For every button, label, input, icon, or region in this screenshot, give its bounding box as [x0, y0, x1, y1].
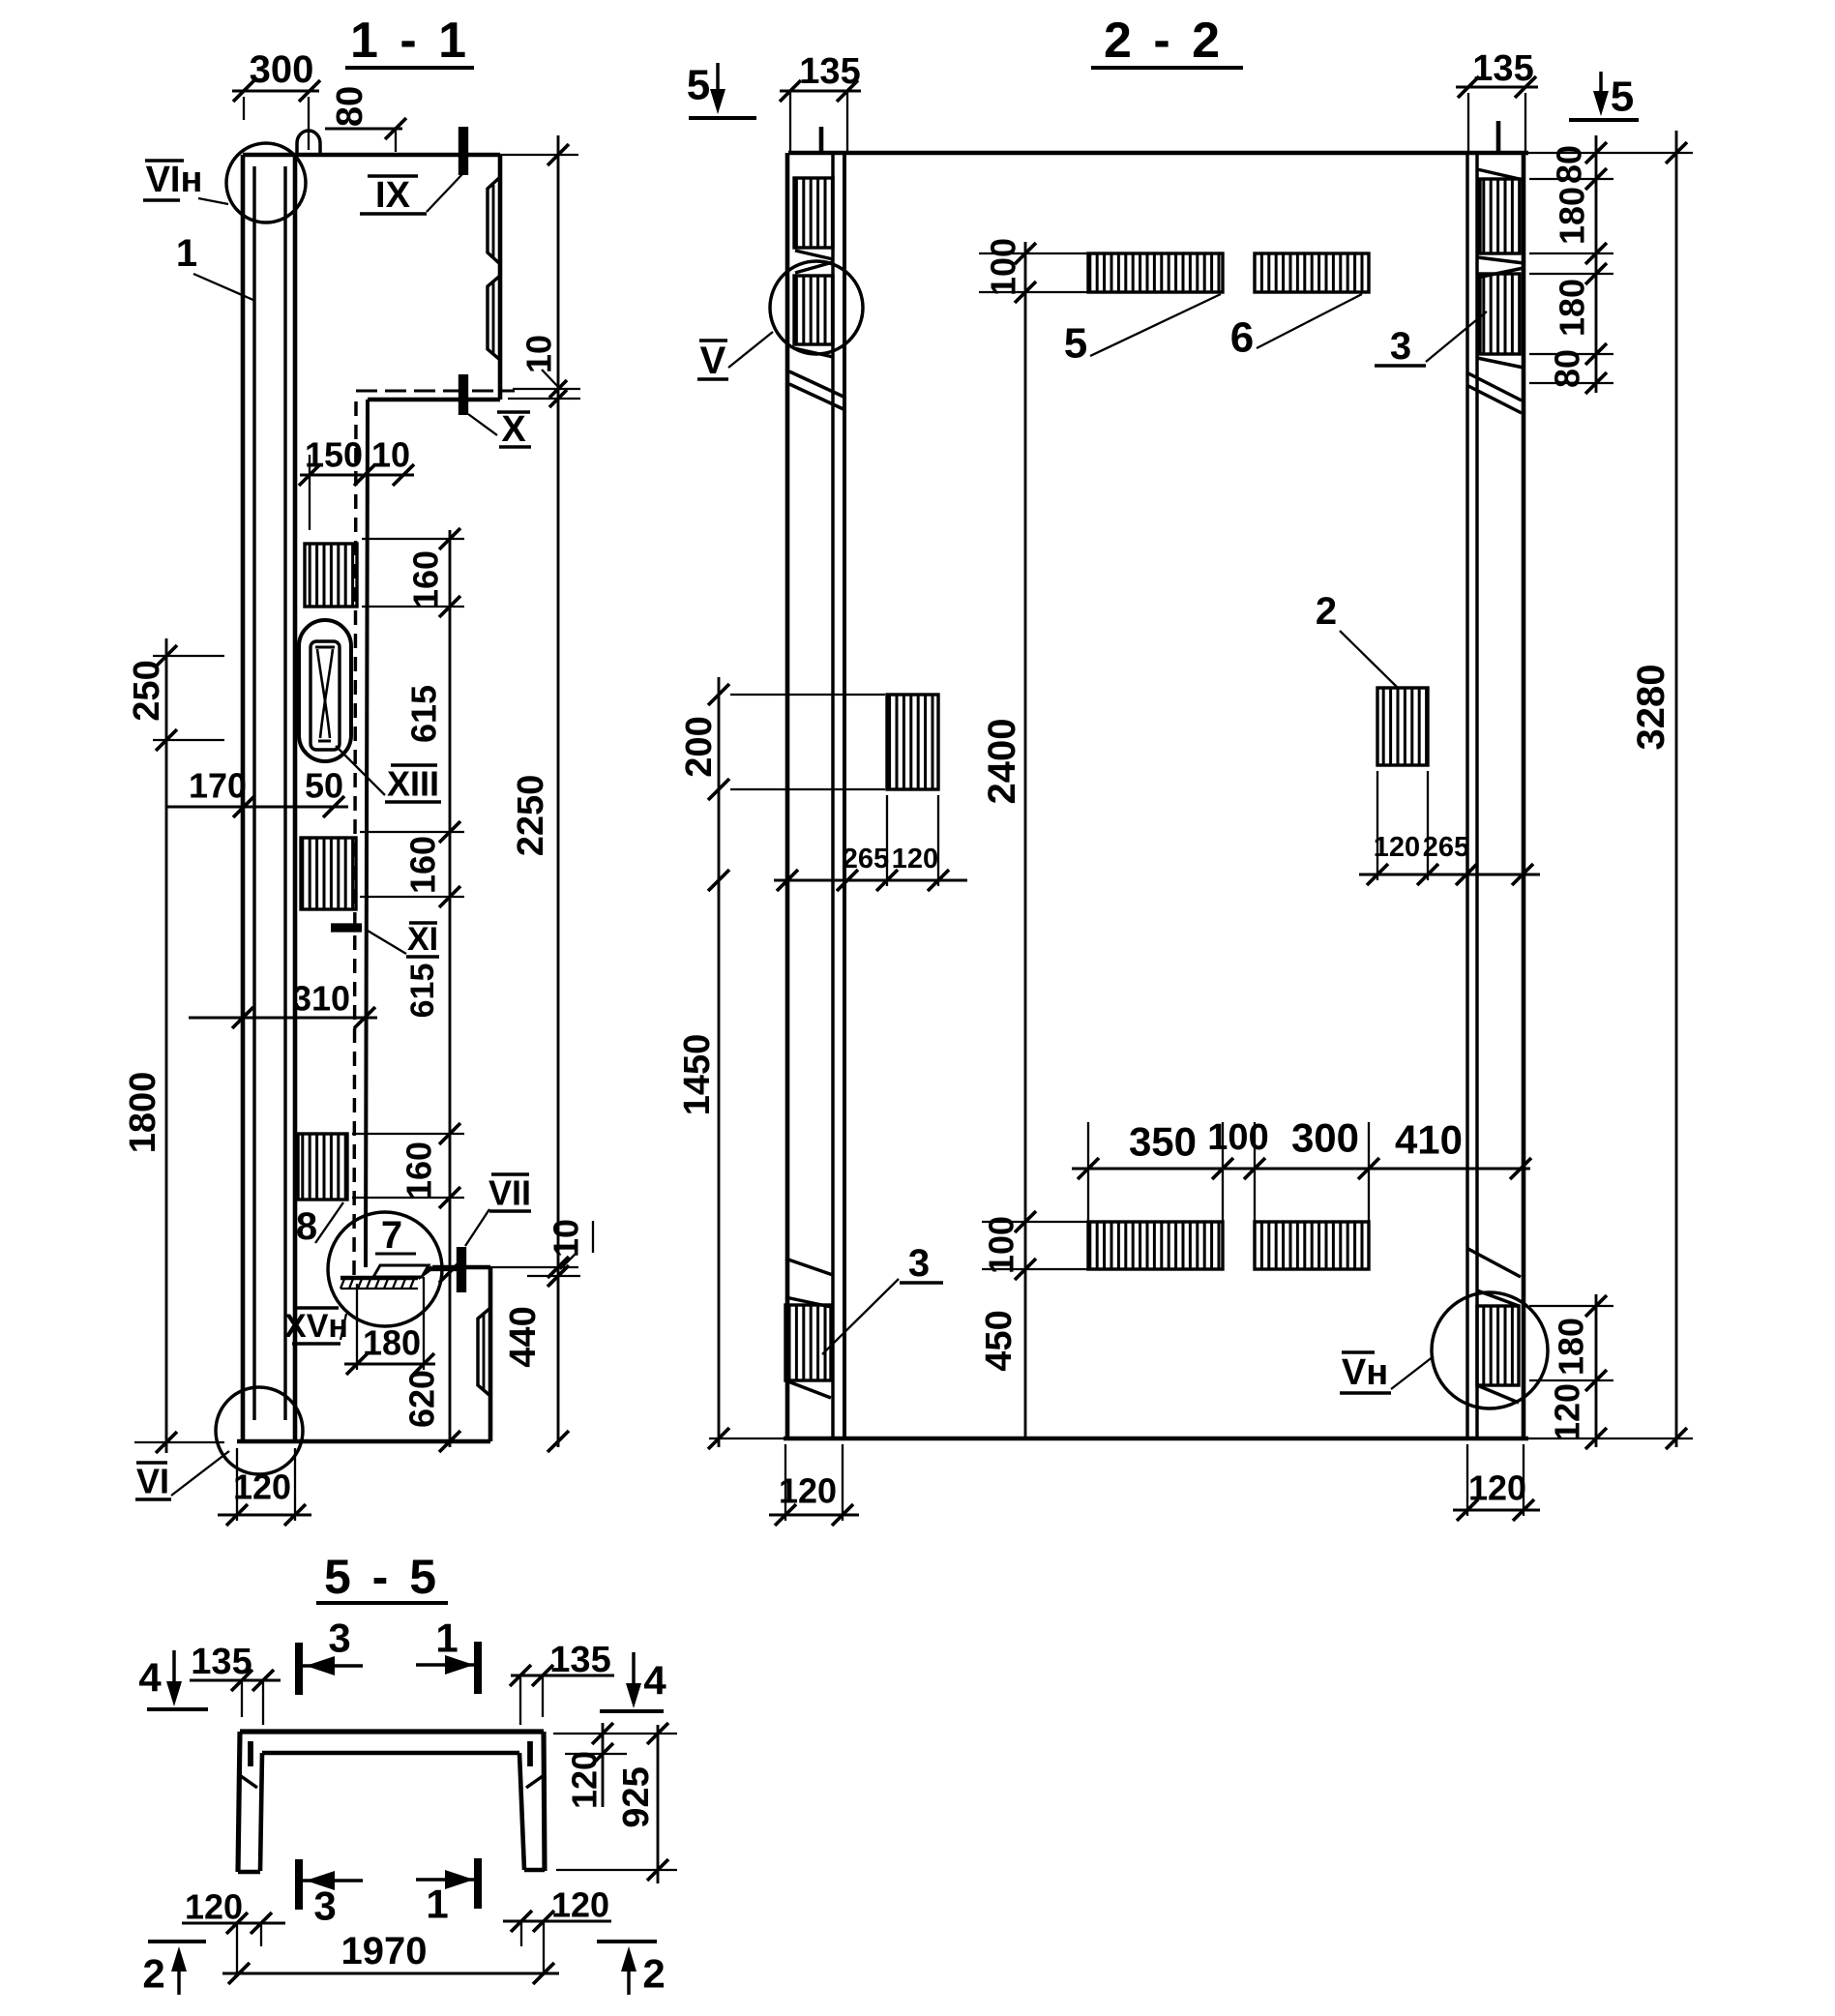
svg-text:VI: VI: [136, 1462, 169, 1501]
svg-text:100: 100: [1207, 1117, 1268, 1158]
svg-text:100: 100: [984, 238, 1023, 296]
svg-text:IX: IX: [375, 175, 411, 216]
svg-text:265: 265: [843, 844, 889, 875]
svg-text:50: 50: [305, 766, 343, 806]
svg-text:310: 310: [292, 979, 350, 1019]
svg-text:6: 6: [1230, 314, 1254, 362]
svg-text:160: 160: [400, 1141, 439, 1200]
svg-text:180: 180: [1552, 1318, 1591, 1376]
svg-text:2: 2: [642, 1951, 665, 1997]
svg-text:3: 3: [908, 1242, 930, 1285]
svg-text:5 - 5: 5 - 5: [324, 1550, 440, 1604]
svg-text:3: 3: [1390, 325, 1411, 368]
svg-text:135: 135: [1472, 48, 1533, 89]
svg-text:5: 5: [1064, 320, 1087, 368]
svg-text:120: 120: [892, 844, 938, 875]
svg-text:135: 135: [191, 1642, 252, 1682]
svg-text:V: V: [700, 340, 726, 382]
svg-text:120: 120: [565, 1751, 605, 1809]
svg-text:350: 350: [1129, 1119, 1197, 1165]
svg-text:120: 120: [1548, 1383, 1587, 1441]
svg-text:440: 440: [503, 1306, 544, 1367]
svg-text:5: 5: [687, 62, 710, 109]
svg-text:300: 300: [1291, 1115, 1359, 1161]
svg-text:3280: 3280: [1630, 665, 1672, 751]
svg-text:XVн: XVн: [284, 1308, 348, 1345]
svg-text:10: 10: [547, 1219, 586, 1258]
svg-text:3: 3: [328, 1616, 350, 1661]
svg-text:XI: XI: [407, 921, 438, 958]
svg-text:2 - 2: 2 - 2: [1104, 13, 1224, 69]
svg-text:80: 80: [1550, 145, 1589, 184]
svg-text:170: 170: [189, 766, 247, 806]
svg-text:120: 120: [551, 1885, 609, 1925]
svg-text:120: 120: [1374, 832, 1420, 863]
svg-text:1 - 1: 1 - 1: [350, 13, 470, 69]
svg-text:120: 120: [233, 1468, 291, 1507]
svg-text:10: 10: [371, 435, 410, 475]
svg-text:8: 8: [296, 1205, 317, 1248]
svg-text:2: 2: [142, 1951, 164, 1997]
svg-text:450: 450: [979, 1310, 1020, 1371]
svg-text:X: X: [501, 409, 526, 450]
svg-text:615: 615: [404, 964, 441, 1019]
svg-text:1: 1: [435, 1616, 458, 1661]
svg-text:4: 4: [643, 1658, 666, 1704]
svg-text:1450: 1450: [677, 1034, 718, 1116]
svg-text:2400: 2400: [981, 719, 1023, 805]
svg-text:925: 925: [616, 1766, 657, 1827]
svg-text:160: 160: [406, 550, 446, 608]
svg-text:120: 120: [185, 1887, 243, 1927]
svg-text:80: 80: [1548, 349, 1587, 388]
svg-text:160: 160: [403, 836, 443, 894]
svg-text:1: 1: [176, 232, 197, 275]
svg-text:7: 7: [381, 1214, 402, 1257]
svg-text:80: 80: [330, 86, 370, 127]
svg-text:4: 4: [138, 1655, 162, 1701]
svg-text:200: 200: [679, 716, 720, 777]
svg-text:3: 3: [313, 1883, 336, 1929]
svg-text:5: 5: [1611, 74, 1634, 121]
svg-text:VIн: VIн: [146, 160, 203, 200]
svg-text:265: 265: [1423, 832, 1469, 863]
svg-text:615: 615: [404, 685, 444, 743]
svg-text:410: 410: [1395, 1117, 1463, 1163]
svg-text:250: 250: [127, 660, 167, 721]
svg-text:120: 120: [779, 1471, 837, 1511]
svg-text:180: 180: [1553, 187, 1592, 245]
svg-text:Vн: Vн: [1342, 1352, 1388, 1393]
svg-text:XIII: XIII: [387, 764, 439, 804]
svg-text:1970: 1970: [341, 1930, 428, 1972]
svg-text:180: 180: [363, 1323, 421, 1363]
svg-text:100: 100: [982, 1216, 1021, 1274]
svg-text:10: 10: [519, 335, 559, 373]
svg-text:VII: VII: [488, 1173, 531, 1213]
svg-text:300: 300: [250, 48, 314, 91]
svg-text:620: 620: [402, 1370, 442, 1428]
svg-text:180: 180: [1553, 279, 1592, 337]
svg-text:150: 150: [305, 435, 363, 475]
svg-text:2250: 2250: [511, 775, 551, 857]
svg-text:2: 2: [1316, 590, 1337, 633]
svg-text:1800: 1800: [123, 1072, 163, 1154]
